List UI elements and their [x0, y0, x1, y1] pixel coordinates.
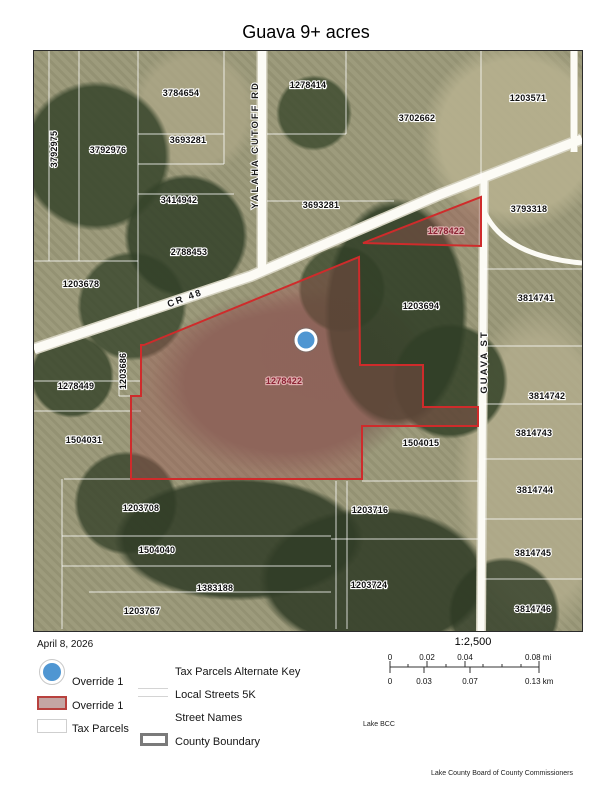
legend-override-point-label: Override 1 [72, 676, 123, 688]
parcel-label: 3814746 [515, 604, 551, 614]
parcel-label: 1203694 [403, 301, 439, 311]
parcel-label: 1203571 [510, 93, 546, 103]
parcel-label: 3792975 [49, 131, 59, 167]
parcel-label: 1278414 [290, 80, 326, 90]
parcel-label: 3814742 [529, 391, 565, 401]
scale-km-2: 0.07 [462, 677, 478, 686]
map-frame: 3792975379297637846543693281341494227884… [33, 50, 583, 632]
parcel-label: 2788453 [171, 247, 207, 257]
legend-local-streets-label: Local Streets 5K [175, 689, 256, 701]
legend-tax-parcels-swatch [37, 719, 67, 733]
credit-county: Lake County Board of County Commissioner… [373, 770, 573, 777]
scale-km-3: 0.13 km [525, 677, 554, 686]
side-road-curve [484, 211, 582, 263]
scale-mi-0: 0 [388, 653, 393, 662]
parcel-label: 3792976 [90, 145, 126, 155]
street-name-label: GUAVA ST [479, 330, 490, 393]
street-name-label: YALAHA CUTOFF RD [250, 81, 261, 209]
street-name-label: CR 48 [166, 287, 204, 310]
parcel-label: 1203678 [63, 279, 99, 289]
parcel-label: 3814741 [518, 293, 554, 303]
parcel-label: 3693281 [170, 135, 206, 145]
parcel-label: 1504040 [139, 545, 175, 555]
legend-override-polygon-label: Override 1 [72, 700, 123, 712]
map-date: April 8, 2026 [37, 639, 93, 650]
parcel-label: 3414942 [161, 195, 197, 205]
override-parcel-label: 1278422 [266, 376, 302, 386]
scale-bar: 0 0.02 0.04 0.08 mi 0 0.03 0.07 0.13 km [385, 650, 585, 692]
parcel-label: 1203716 [352, 505, 388, 515]
scale-km-0: 0 [388, 677, 393, 686]
legend-tax-parcels-label: Tax Parcels [72, 723, 129, 735]
parcel-label: 3814744 [517, 485, 553, 495]
blue-point-icon [43, 663, 61, 681]
legend-alt-key-label: Tax Parcels Alternate Key [175, 666, 300, 678]
legend-override-point-swatch [39, 659, 65, 685]
map-overlay: 3792975379297637846543693281341494227884… [34, 51, 582, 631]
parcel-label: 1203767 [124, 606, 160, 616]
legend-street-names-label: Street Names [175, 712, 242, 724]
legend-county-boundary-swatch [140, 733, 168, 746]
parcel-label: 1203686 [118, 353, 128, 389]
legend-local-streets-swatch [138, 688, 168, 697]
parcel-label: 1504031 [66, 435, 102, 445]
credit-lake-bcc: Lake BCC [363, 721, 395, 728]
parcel-label: 1203724 [351, 580, 387, 590]
scale-bar-km-ticks [390, 667, 539, 673]
map-document-page: Guava 9+ acres [0, 0, 612, 792]
override-point-marker [294, 328, 318, 352]
parcel-label: 1504015 [403, 438, 439, 448]
override-parcel-label: 1278422 [428, 226, 464, 236]
parcel-label: 3702662 [399, 113, 435, 123]
scale-mi-1: 0.02 [419, 653, 435, 662]
legend-county-boundary-label: County Boundary [175, 736, 260, 748]
scale-ratio: 1:2,500 [413, 636, 533, 648]
parcel-label: 3693281 [303, 200, 339, 210]
marker-blue-dot [296, 330, 316, 350]
scale-mi-3: 0.08 mi [525, 653, 551, 662]
parcel-label: 3793318 [511, 204, 547, 214]
legend-override-polygon-swatch [37, 696, 67, 710]
parcel-label: 3814743 [516, 428, 552, 438]
page-title: Guava 9+ acres [0, 22, 612, 43]
parcel-label: 1203708 [123, 503, 159, 513]
scale-km-1: 0.03 [416, 677, 432, 686]
parcel-label: 3784654 [163, 88, 199, 98]
parcel-label: 1383188 [197, 583, 233, 593]
scale-bar-mile-ticks [390, 661, 539, 667]
scale-mi-2: 0.04 [457, 653, 473, 662]
parcel-label: 1278449 [58, 381, 94, 391]
parcel-label: 3814745 [515, 548, 551, 558]
